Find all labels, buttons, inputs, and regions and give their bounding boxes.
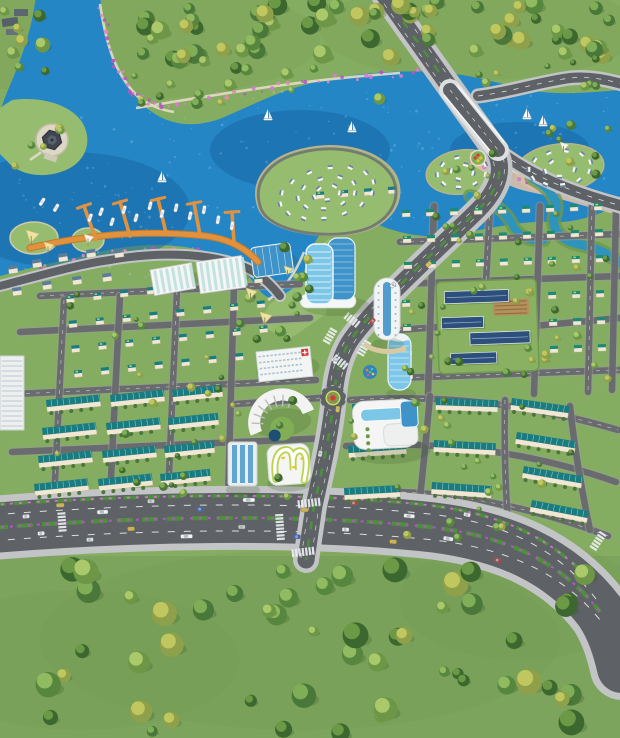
- villa-roof: [548, 292, 556, 295]
- tree-highlight: [194, 600, 207, 613]
- flower-cluster: [124, 77, 127, 80]
- tree-highlight: [521, 372, 525, 376]
- tree-highlight: [409, 309, 413, 313]
- villa-roof: [573, 318, 581, 321]
- villa-roof: [426, 209, 434, 212]
- flower-cluster: [100, 14, 103, 17]
- tree-highlight: [421, 426, 426, 431]
- villa-roof: [450, 208, 458, 211]
- tree-highlight: [242, 64, 249, 71]
- sparkle: [145, 276, 147, 278]
- tree-highlight: [316, 9, 328, 21]
- sparkle: [431, 147, 433, 149]
- tree-highlight: [302, 17, 313, 28]
- sparkle: [559, 133, 562, 136]
- flower-cluster: [117, 70, 120, 73]
- villa-roof: [402, 210, 410, 213]
- tree-highlight: [179, 20, 188, 29]
- hull: [158, 180, 167, 182]
- playground-toy: [366, 369, 369, 372]
- tree-highlight: [55, 451, 58, 454]
- tree-highlight: [549, 261, 553, 265]
- flower-cluster: [369, 75, 373, 79]
- tree-highlight: [568, 450, 572, 454]
- tree-highlight: [281, 68, 288, 75]
- flower-dot: [334, 401, 336, 403]
- flower-cluster: [412, 71, 415, 74]
- tree-highlight: [180, 489, 185, 494]
- tree-highlight: [37, 673, 53, 689]
- sparkle: [428, 131, 430, 133]
- tree-highlight: [462, 594, 475, 607]
- tree-highlight: [586, 41, 597, 52]
- tree-highlight: [433, 213, 438, 218]
- sparkle: [502, 119, 503, 120]
- flower-cluster: [107, 23, 110, 26]
- sparkle: [418, 142, 420, 144]
- roof-panel: [574, 292, 577, 294]
- parterre-flowers: [476, 154, 479, 157]
- tree-highlight: [236, 320, 241, 325]
- rooftop-track-building: [265, 443, 316, 493]
- flower-cluster: [107, 43, 109, 45]
- tree-highlight: [225, 79, 232, 86]
- playground-toy: [367, 374, 370, 377]
- flower-cluster: [207, 96, 211, 100]
- flower-dot: [337, 397, 339, 399]
- tree-highlight: [605, 375, 610, 380]
- boulevard-vehicle: [22, 514, 29, 518]
- sparkle: [139, 225, 142, 228]
- sparkle: [104, 185, 107, 188]
- tree-highlight: [442, 398, 446, 402]
- window: [378, 299, 380, 301]
- sparkle: [507, 101, 508, 102]
- villa-roof: [522, 206, 530, 209]
- window: [395, 313, 397, 315]
- tree-highlight: [280, 242, 286, 248]
- vehicle-glass: [129, 528, 132, 531]
- sparkle: [418, 170, 420, 172]
- playground-toy: [372, 373, 375, 376]
- tree-highlight: [134, 479, 139, 484]
- sparkle: [240, 141, 242, 143]
- tree-highlight: [494, 71, 498, 75]
- glass-stripe: [232, 445, 237, 483]
- island-villa: [295, 196, 300, 202]
- window: [378, 285, 380, 287]
- sparkle: [42, 206, 44, 208]
- tree-highlight: [236, 411, 240, 415]
- tree-highlight: [137, 18, 148, 29]
- sparkle: [184, 117, 185, 118]
- tree-highlight: [192, 439, 196, 443]
- boulevard-vehicle: [97, 510, 108, 514]
- tree-highlight: [215, 386, 220, 391]
- sparkle: [128, 211, 131, 214]
- aerial-render: [0, 0, 620, 738]
- avenue-vehicle: [335, 406, 340, 412]
- window: [378, 334, 380, 336]
- sparkle: [19, 179, 21, 181]
- sparkle: [423, 217, 424, 218]
- tree-highlight: [538, 480, 544, 486]
- tree-highlight: [253, 23, 263, 33]
- sparkle: [199, 153, 201, 155]
- flower-cluster: [327, 81, 330, 84]
- tree-highlight: [444, 572, 460, 588]
- tree-highlight: [199, 56, 206, 63]
- tree-highlight: [503, 369, 508, 374]
- tree-highlight: [592, 82, 597, 87]
- boulevard-vehicle: [301, 508, 308, 512]
- tree-highlight: [498, 676, 510, 688]
- sparkle: [489, 115, 490, 116]
- roof-panel: [404, 236, 407, 238]
- sparkle: [415, 110, 418, 113]
- flower-cluster: [167, 105, 170, 108]
- sparkle: [437, 138, 439, 140]
- sparkle: [267, 141, 268, 142]
- tree-highlight: [515, 239, 519, 243]
- sparkle: [401, 191, 403, 193]
- tree-highlight: [482, 78, 488, 84]
- tree-highlight: [384, 558, 400, 574]
- sparkle: [169, 138, 170, 139]
- island-villa: [321, 217, 326, 221]
- tree-highlight: [184, 4, 191, 11]
- boulevard-vehicle: [238, 525, 245, 529]
- tree-highlight: [195, 90, 201, 96]
- tree-highlight: [397, 628, 407, 638]
- tree-highlight: [574, 332, 579, 337]
- tree-highlight: [454, 534, 459, 539]
- roof-panel: [94, 293, 97, 295]
- sparkle: [542, 131, 545, 134]
- flower-cluster: [112, 65, 115, 68]
- tree-highlight: [205, 390, 209, 394]
- tree-highlight: [275, 474, 280, 479]
- flower-cluster: [175, 102, 180, 107]
- sparkle: [309, 105, 310, 106]
- tree-highlight: [528, 288, 532, 292]
- boulevard-vehicle: [37, 531, 44, 535]
- tree-highlight: [591, 362, 595, 366]
- flower-cluster: [109, 48, 112, 51]
- tree-highlight: [545, 63, 549, 67]
- island-villa: [557, 175, 562, 179]
- villa-roof: [557, 177, 562, 179]
- tree-highlight: [581, 82, 587, 88]
- sparkle: [97, 195, 98, 196]
- island-villa: [456, 186, 461, 190]
- tree-highlight: [422, 25, 431, 34]
- tree-highlight: [74, 560, 90, 576]
- sparkle: [550, 138, 552, 140]
- boulevard-vehicle: [181, 534, 193, 538]
- tree-highlight: [169, 482, 172, 485]
- tree-highlight: [44, 710, 53, 719]
- tree-highlight: [568, 225, 571, 228]
- flower-dot: [334, 393, 336, 395]
- sparkle: [166, 174, 169, 177]
- window: [378, 320, 380, 322]
- flower-cluster: [364, 74, 368, 78]
- island-villa: [435, 172, 439, 177]
- shore-villa: [58, 253, 68, 262]
- roof-cart: [292, 466, 296, 468]
- tree-highlight: [551, 306, 556, 311]
- tree-highlight: [180, 472, 185, 477]
- tree-highlight: [472, 1, 480, 9]
- tree-highlight: [167, 80, 172, 85]
- tree-highlight: [134, 317, 137, 320]
- pier-head: [225, 212, 239, 213]
- sparkle: [80, 116, 83, 119]
- parterre-flowers: [479, 156, 482, 159]
- flower-cluster: [104, 29, 109, 34]
- roof-panel: [75, 371, 78, 373]
- sparkle: [380, 154, 382, 156]
- flower-cluster: [152, 101, 155, 104]
- island-villa: [328, 165, 333, 169]
- office-tower: [226, 442, 260, 497]
- tree-highlight: [245, 695, 253, 703]
- apartment-body: [0, 356, 24, 430]
- roof-panel: [129, 365, 132, 367]
- flower-cluster: [318, 81, 320, 83]
- tree-highlight: [7, 47, 15, 55]
- roof-cart: [281, 457, 285, 459]
- tree-highlight: [67, 302, 72, 307]
- flower-cluster: [252, 87, 256, 91]
- tree-highlight: [349, 418, 352, 421]
- tree-highlight: [369, 653, 381, 665]
- tree-highlight: [309, 626, 315, 632]
- sparkle: [108, 163, 109, 164]
- tree-highlight: [57, 127, 61, 131]
- roof-panel: [153, 337, 156, 339]
- shore-villa: [86, 249, 96, 258]
- tree-highlight: [553, 211, 557, 215]
- roof-panel: [525, 258, 528, 260]
- flower-cluster: [224, 95, 229, 100]
- tree-highlight: [563, 29, 573, 39]
- tree-highlight: [276, 326, 283, 333]
- tree-highlight: [164, 712, 174, 722]
- sparkle: [495, 104, 498, 107]
- flower-cluster: [44, 264, 47, 267]
- tree-highlight: [455, 358, 460, 363]
- tree-highlight: [12, 162, 17, 167]
- window: [395, 334, 397, 336]
- flower-cluster: [128, 90, 132, 94]
- tree-highlight: [440, 667, 446, 673]
- boulevard-vehicle: [147, 499, 154, 503]
- tree-highlight: [152, 22, 164, 34]
- tree-highlight: [227, 586, 238, 597]
- flower-cluster: [121, 70, 124, 73]
- sparkle: [391, 218, 393, 220]
- flower-cluster: [97, 7, 99, 9]
- boulevard-vehicle: [56, 503, 64, 507]
- tree-highlight: [276, 721, 287, 732]
- villa-roof: [328, 165, 333, 167]
- tree-highlight: [16, 35, 24, 43]
- tree-highlight: [175, 453, 178, 456]
- roof-panel: [231, 304, 234, 306]
- tree-highlight: [119, 467, 123, 471]
- sparkle: [366, 92, 367, 93]
- flower-dot: [330, 401, 332, 403]
- sparkle: [573, 92, 574, 93]
- tree-highlight: [245, 35, 255, 45]
- tree-highlight: [491, 474, 495, 478]
- flower-cluster: [103, 18, 107, 22]
- boulevard-vehicle: [389, 539, 396, 544]
- sparkle: [33, 206, 35, 208]
- villa-roof: [547, 231, 555, 234]
- tree-highlight: [289, 396, 295, 402]
- roof-panel: [68, 296, 71, 298]
- boulevard-vehicle: [342, 527, 349, 531]
- tree-highlight: [592, 55, 597, 60]
- tree-highlight: [295, 311, 298, 314]
- tree-highlight: [277, 565, 286, 574]
- tree-highlight: [603, 256, 607, 260]
- sparkle: [97, 219, 99, 221]
- sparkle: [257, 107, 259, 109]
- sparkle: [252, 97, 254, 99]
- flower-cluster: [126, 83, 130, 87]
- flower-cluster: [276, 81, 280, 85]
- tree-highlight: [496, 484, 500, 488]
- tree-highlight: [448, 440, 453, 445]
- tree-highlight: [567, 121, 573, 127]
- tree-highlight: [537, 462, 540, 465]
- tree-highlight: [187, 383, 192, 388]
- sparkle: [129, 272, 132, 275]
- tree-highlight: [284, 335, 288, 339]
- tree-highlight: [395, 484, 399, 488]
- sparkle: [91, 182, 93, 184]
- sparkle: [207, 205, 209, 207]
- tree-highlight: [137, 373, 140, 376]
- tree-highlight: [493, 523, 498, 528]
- sparkle: [192, 247, 194, 249]
- sparkle: [151, 187, 153, 189]
- tree-highlight: [592, 170, 598, 176]
- vehicle-glass: [184, 535, 189, 538]
- tree-highlight: [138, 99, 143, 104]
- flower-cluster: [82, 254, 85, 257]
- villa-roof: [321, 209, 326, 211]
- tree-highlight: [438, 415, 442, 419]
- sparkle: [409, 111, 410, 112]
- tree-highlight: [574, 265, 578, 269]
- villa-roof: [550, 346, 558, 349]
- shore-villa: [102, 273, 112, 282]
- tree-highlight: [513, 32, 525, 44]
- tree-highlight: [531, 14, 537, 20]
- tree-highlight: [440, 304, 444, 308]
- sparkle: [73, 192, 74, 193]
- glass-stripe: [240, 445, 245, 483]
- sparkle: [252, 206, 255, 209]
- flower-sculpture: [330, 395, 336, 401]
- tree-highlight: [517, 670, 533, 686]
- tree-highlight: [529, 357, 533, 361]
- flower-cluster: [232, 90, 236, 94]
- hull: [539, 124, 548, 126]
- sparkle: [220, 152, 222, 154]
- villa-roof: [596, 290, 604, 293]
- tree-highlight: [520, 404, 524, 408]
- vehicle-glass: [24, 515, 27, 518]
- boulevard-vehicle: [197, 507, 204, 511]
- sparkle: [606, 107, 607, 108]
- vehicle-glass: [149, 500, 152, 503]
- villa-roof: [570, 204, 578, 207]
- tree-highlight: [344, 623, 360, 639]
- sparkle: [131, 187, 132, 188]
- tree-highlight: [15, 63, 21, 69]
- tree-highlight: [205, 355, 208, 358]
- tree-highlight: [477, 507, 480, 510]
- flower-cluster: [303, 80, 307, 84]
- flower-cluster: [399, 74, 403, 78]
- flower-cluster: [340, 75, 344, 79]
- sparkle: [281, 90, 284, 93]
- sparkle: [265, 161, 268, 164]
- sparkle: [556, 103, 558, 105]
- roof-panel: [404, 300, 407, 302]
- cross-h: [302, 352, 307, 353]
- tree-highlight: [132, 73, 136, 77]
- vehicle-glass: [58, 504, 61, 507]
- tree-highlight: [219, 435, 224, 440]
- villa-roof: [427, 235, 435, 238]
- tree-highlight: [253, 335, 258, 340]
- vehicle-glass: [88, 538, 91, 541]
- sparkle: [515, 147, 517, 149]
- tree-highlight: [231, 62, 238, 69]
- sparkle: [97, 251, 100, 254]
- villa-roof: [546, 205, 554, 208]
- tree-highlight: [13, 24, 19, 30]
- sparkle: [390, 149, 393, 152]
- tree-highlight: [546, 130, 551, 135]
- parterre-flowers: [476, 159, 479, 162]
- sparkle: [25, 199, 27, 201]
- roof-panel: [318, 192, 321, 194]
- sparkle: [168, 161, 170, 163]
- tree-highlight: [112, 333, 116, 337]
- tree-highlight: [284, 493, 288, 497]
- sparkle: [59, 222, 61, 224]
- island-villa: [325, 198, 330, 203]
- roof-panel: [549, 257, 552, 259]
- sparkle: [603, 110, 605, 112]
- tree-highlight: [604, 15, 611, 22]
- tree-highlight: [590, 2, 598, 10]
- sparkle: [162, 124, 163, 125]
- window: [378, 292, 380, 294]
- flower-cluster: [356, 78, 359, 81]
- flower-cluster: [270, 86, 275, 91]
- tree-highlight: [458, 675, 466, 683]
- tree-highlight: [435, 330, 439, 334]
